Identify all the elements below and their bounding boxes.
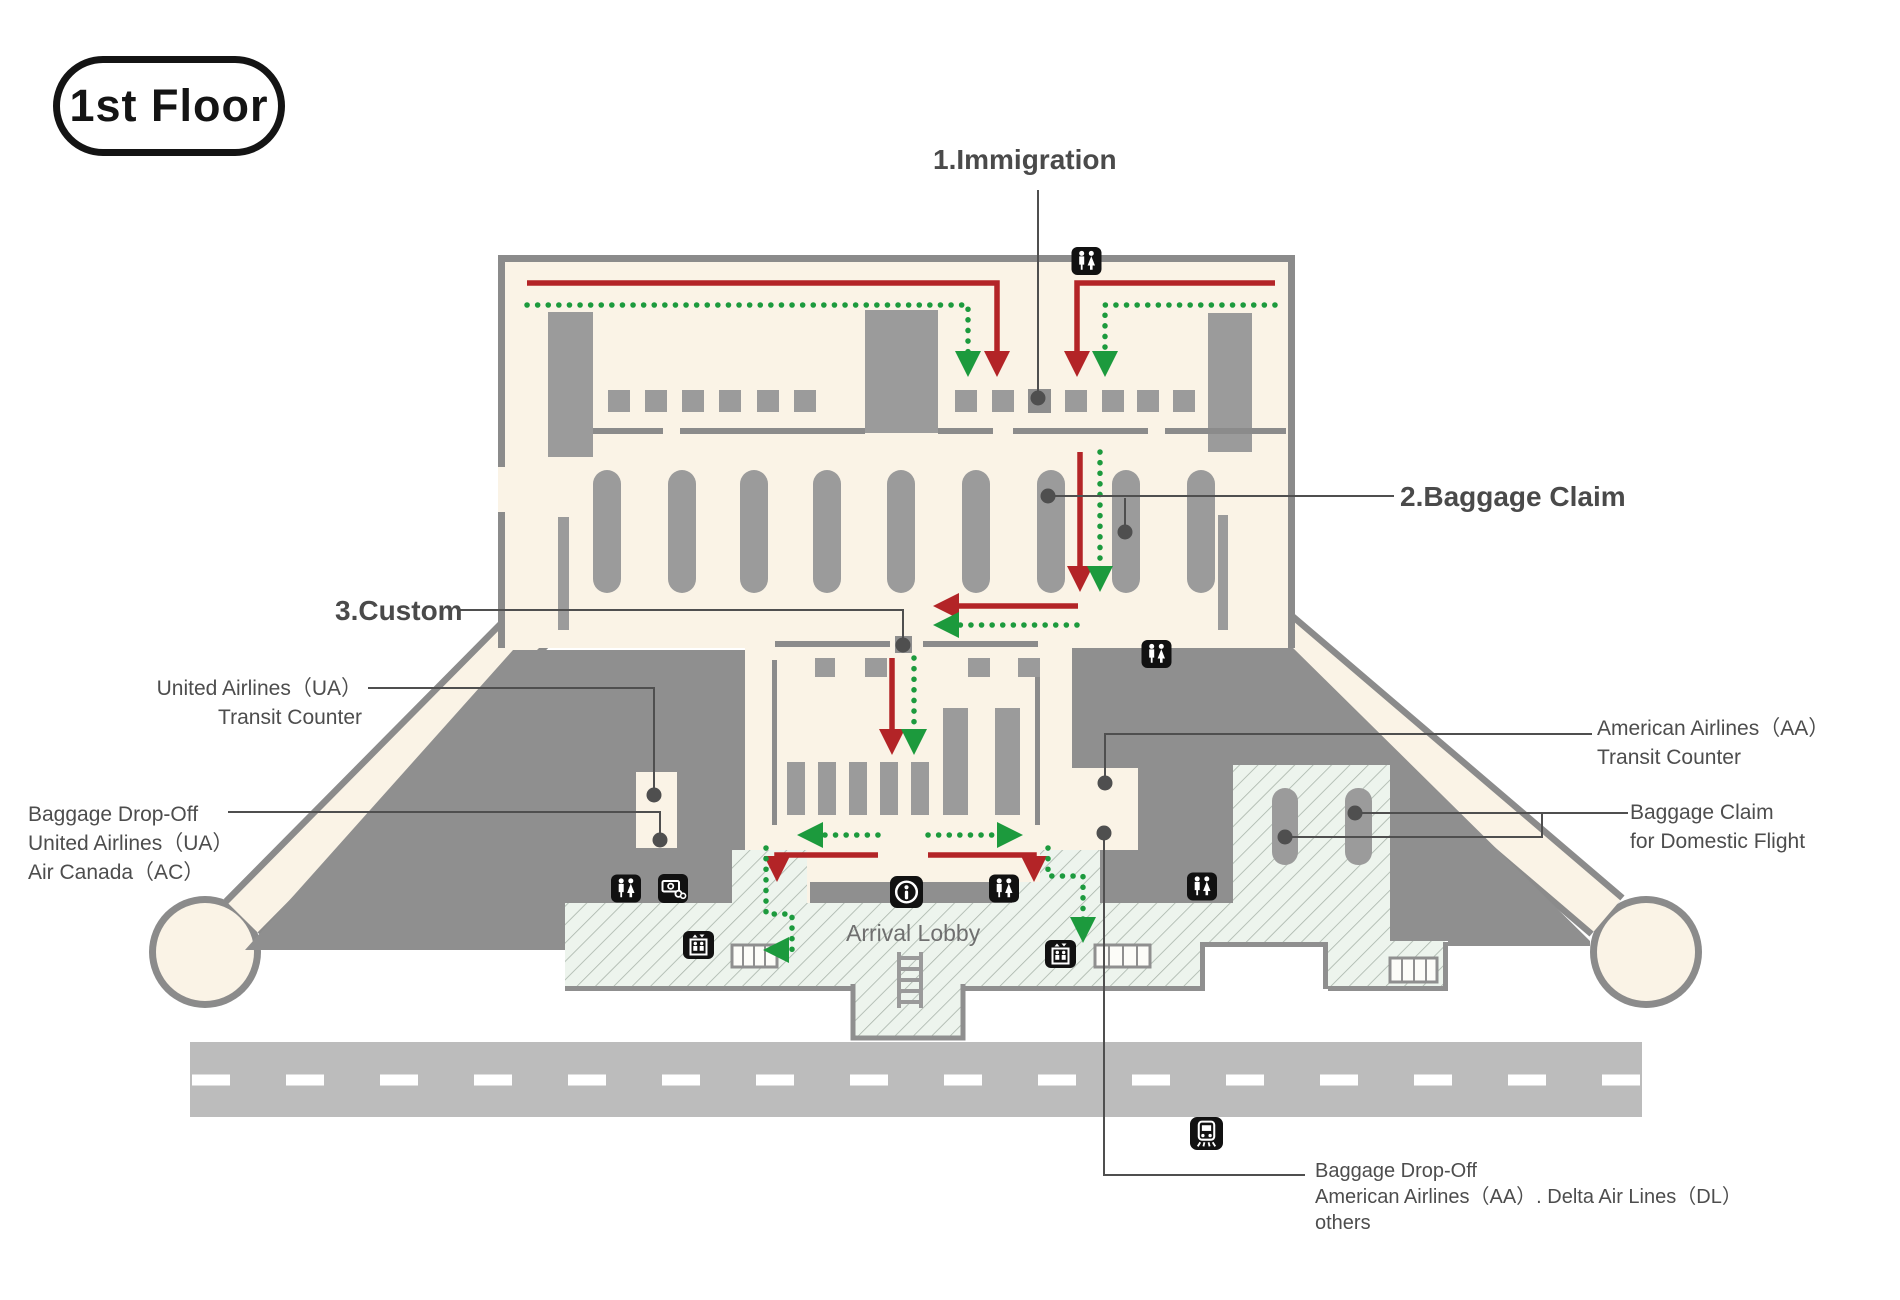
- moving-walkway-left: [732, 945, 777, 967]
- elevator-icon: [683, 931, 714, 964]
- moving-walkway-annex: [1390, 958, 1437, 982]
- arrival-lobby-label: Arrival Lobby: [846, 920, 980, 947]
- information-icon: [890, 876, 923, 913]
- callout-baggage-claim: 2.Baggage Claim: [1400, 481, 1626, 513]
- restroom-icon: [611, 874, 641, 908]
- airport-floor-map: 1st Floor 1.Immigration 2.Baggage Claim …: [0, 0, 1900, 1300]
- train-icon: [1190, 1117, 1223, 1155]
- immigration-wall: [593, 428, 1286, 434]
- pillar: [548, 312, 593, 457]
- access-road: [190, 1042, 1642, 1117]
- callout-immigration: 1.Immigration: [933, 144, 1117, 176]
- pillar: [865, 310, 938, 433]
- callout-domestic-baggage: Baggage Claim for Domestic Flight: [1630, 798, 1805, 856]
- terminal-map-svg: [0, 0, 1900, 1300]
- callout-ua-transit: United Airlines（UA） Transit Counter: [148, 674, 362, 732]
- callout-aa-dl-dropoff: Baggage Drop-Off American Airlines（AA）. …: [1315, 1158, 1742, 1236]
- restroom-icon: [1187, 872, 1217, 906]
- callout-ua-ac-dropoff: Baggage Drop-Off United Airlines（UA） Air…: [28, 800, 233, 887]
- callout-aa-transit: American Airlines（AA） Transit Counter: [1597, 714, 1829, 772]
- callout-custom: 3.Custom: [335, 595, 463, 627]
- elevator-icon: [1045, 940, 1076, 973]
- restroom-icon: [1141, 640, 1172, 673]
- floor-badge: 1st Floor: [53, 56, 285, 156]
- restroom-icon: [1071, 247, 1102, 280]
- currency-exchange-icon: [658, 874, 688, 908]
- restroom-icon: [989, 874, 1019, 908]
